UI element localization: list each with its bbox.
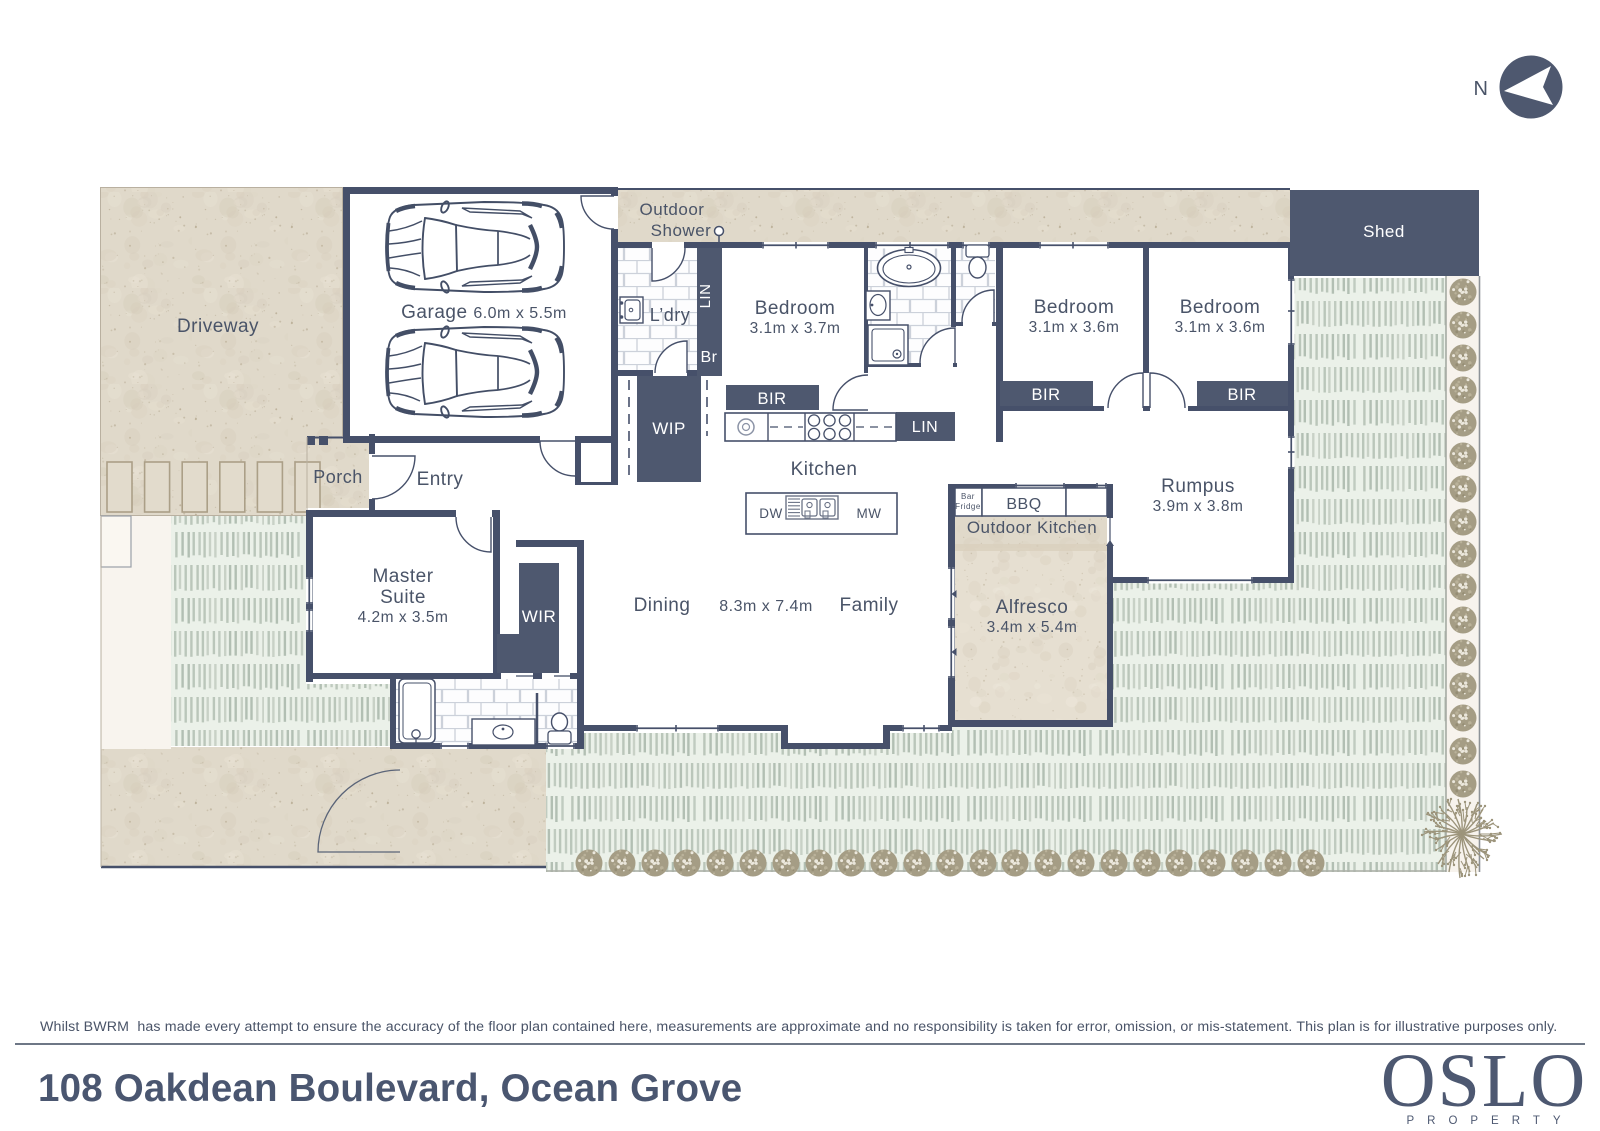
svg-text:OSLO: OSLO (1381, 1039, 1587, 1123)
svg-text:Dining: Dining (634, 595, 691, 616)
svg-text:Br: Br (701, 349, 718, 366)
svg-text:BBQ: BBQ (1006, 496, 1041, 513)
svg-text:LIN: LIN (912, 419, 938, 436)
svg-text:N: N (1474, 78, 1489, 100)
svg-text:BIR: BIR (1227, 386, 1256, 404)
svg-text:Entry: Entry (417, 469, 464, 490)
svg-text:3.1m x 3.6m: 3.1m x 3.6m (1175, 319, 1266, 336)
svg-text:Suite: Suite (380, 587, 426, 608)
svg-text:DW: DW (759, 506, 783, 521)
svg-text:Alfresco: Alfresco (996, 597, 1069, 618)
svg-text:Rumpus: Rumpus (1161, 476, 1235, 497)
svg-text:Garage 6.0m x 5.5m: Garage 6.0m x 5.5m (401, 302, 567, 323)
svg-text:BIR: BIR (757, 390, 786, 408)
svg-text:Kitchen: Kitchen (791, 459, 858, 480)
svg-text:Fridge: Fridge (955, 502, 981, 511)
svg-text:Driveway: Driveway (177, 316, 259, 337)
svg-text:4.2m x 3.5m: 4.2m x 3.5m (358, 609, 449, 626)
svg-text:3.9m x 3.8m: 3.9m x 3.8m (1153, 498, 1244, 515)
svg-text:8.3m x 7.4m: 8.3m x 7.4m (719, 598, 813, 615)
svg-text:Bar: Bar (961, 492, 975, 501)
svg-text:PROPERTY: PROPERTY (1406, 1115, 1573, 1127)
svg-text:Master: Master (372, 566, 433, 587)
svg-text:Outdoor Kitchen: Outdoor Kitchen (967, 518, 1097, 537)
svg-text:L’dry: L’dry (650, 305, 691, 325)
svg-text:Whilst BWRM has made every at: Whilst BWRM has made every attempt to en… (40, 1019, 1557, 1035)
svg-text:3.1m x 3.6m: 3.1m x 3.6m (1029, 319, 1120, 336)
svg-text:WIR: WIR (522, 607, 557, 626)
svg-text:Outdoor: Outdoor (640, 200, 705, 219)
svg-text:WIP: WIP (652, 419, 686, 438)
svg-text:Shed: Shed (1363, 222, 1405, 241)
svg-text:LIN: LIN (697, 284, 714, 309)
svg-text:MW: MW (857, 506, 882, 521)
svg-text:Family: Family (840, 595, 899, 616)
svg-text:108 Oakdean Boulevard, Ocean G: 108 Oakdean Boulevard, Ocean Grove (38, 1067, 742, 1110)
svg-text:3.4m x 5.4m: 3.4m x 5.4m (987, 619, 1078, 636)
svg-text:Bedroom: Bedroom (1180, 297, 1261, 318)
svg-text:Porch: Porch (313, 467, 363, 487)
svg-text:Bedroom: Bedroom (1034, 297, 1115, 318)
svg-text:3.1m x 3.7m: 3.1m x 3.7m (750, 320, 841, 337)
svg-text:Shower: Shower (651, 221, 712, 240)
svg-text:BIR: BIR (1031, 386, 1060, 404)
svg-text:Bedroom: Bedroom (755, 298, 836, 319)
